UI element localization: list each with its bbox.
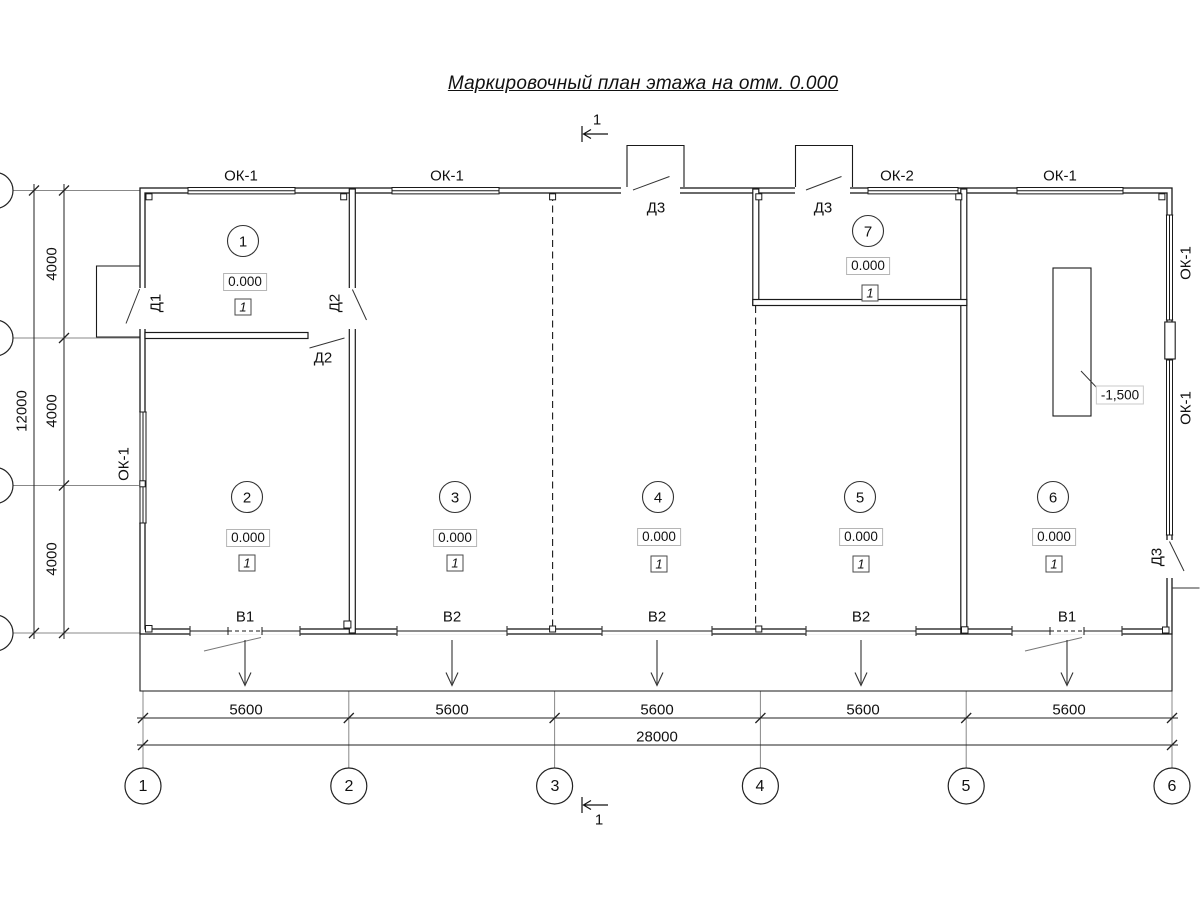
section-mark-label-top: 1 <box>593 112 601 129</box>
room-elevation: 0.000 <box>637 528 681 546</box>
axis-number-6: 6 <box>1168 778 1177 796</box>
dim-left-span-2: 4000 <box>44 394 61 427</box>
pit-depth-label: -1,500 <box>1096 386 1144 405</box>
dim-span-2: 5600 <box>435 702 468 719</box>
door-label-d2-side: Д2 <box>327 294 344 313</box>
drawing-title: Маркировочный план этажа на отм. 0.000 <box>448 73 838 95</box>
room-elevation: 0.000 <box>839 528 883 546</box>
plan-linework <box>0 0 1200 900</box>
dim-span-5: 5600 <box>1052 702 1085 719</box>
room-elevation: 0.000 <box>1032 528 1076 546</box>
window-label-ok1-top3: ОК-1 <box>1043 168 1077 185</box>
gate-label-v1-b: В1 <box>1058 609 1076 626</box>
window-label-ok2-top: ОК-2 <box>880 168 914 185</box>
dim-span-4: 5600 <box>846 702 879 719</box>
axis-number-4: 4 <box>756 778 765 796</box>
dim-total-bottom: 28000 <box>636 729 678 746</box>
dim-left-total: 12000 <box>14 390 31 432</box>
room-number: 1 <box>239 234 247 251</box>
gate-label-v2-a: В2 <box>443 609 461 626</box>
dim-span-1: 5600 <box>229 702 262 719</box>
gate-label-v2-b: В2 <box>648 609 666 626</box>
room-number: 6 <box>1049 490 1057 507</box>
room-number: 2 <box>243 490 251 507</box>
room-finish-type: 1 <box>853 556 870 573</box>
dim-left-span-1: 4000 <box>44 247 61 280</box>
door-label-d3-top2: Д3 <box>814 200 833 217</box>
door-label-d2-bottom: Д2 <box>314 350 333 367</box>
window-label-ok1-right2: ОК-1 <box>1178 391 1195 425</box>
door-label-d3-top1: Д3 <box>647 200 666 217</box>
door-label-d3-right: Д3 <box>1149 548 1166 567</box>
window-label-ok1-top1: ОК-1 <box>224 168 258 185</box>
right-wall-pier <box>1165 322 1175 359</box>
axis-number-1: 1 <box>139 778 148 796</box>
door-label-d1: Д1 <box>148 294 165 313</box>
room-finish-type: 1 <box>447 555 464 572</box>
room-number: 7 <box>864 224 872 241</box>
axis-number-5: 5 <box>962 778 971 796</box>
axis-number-3: 3 <box>551 778 560 796</box>
room-number: 4 <box>654 490 662 507</box>
room-elevation: 0.000 <box>223 273 267 291</box>
room-elevation: 0.000 <box>433 529 477 547</box>
window-label-ok1-right1: ОК-1 <box>1178 246 1195 280</box>
window-label-ok1-top2: ОК-1 <box>430 168 464 185</box>
drawing-sheet: Маркировочный план этажа на отм. 0.000 1… <box>0 0 1200 900</box>
room-finish-type: 1 <box>651 556 668 573</box>
room-number: 5 <box>856 490 864 507</box>
room-finish-type: 1 <box>862 285 879 302</box>
room-finish-type: 1 <box>235 299 252 316</box>
gate-label-v1-a: В1 <box>236 609 254 626</box>
room-finish-type: 1 <box>1046 556 1063 573</box>
room-number: 3 <box>451 490 459 507</box>
room-finish-type: 1 <box>239 555 256 572</box>
room-elevation: 0.000 <box>226 529 270 547</box>
gate-label-v2-c: В2 <box>852 609 870 626</box>
axis-number-2: 2 <box>345 778 354 796</box>
dim-span-3: 5600 <box>640 702 673 719</box>
section-mark-label-bottom: 1 <box>595 812 603 829</box>
room-elevation: 0.000 <box>846 257 890 275</box>
window-label-ok1-left: ОК-1 <box>116 447 133 481</box>
dim-left-span-3: 4000 <box>44 542 61 575</box>
exit-arrows <box>239 640 1073 686</box>
